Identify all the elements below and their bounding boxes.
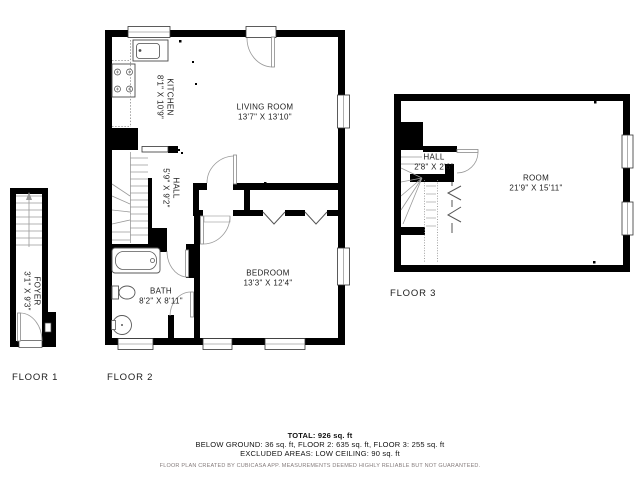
room-label-bath: BATH 8'2" X 8'11" [139,287,183,306]
room-name: FOYER [32,271,42,311]
room-dims: 3'1" X 9'3" [23,271,33,311]
room-name: BEDROOM [243,269,292,279]
hall-beam [142,147,168,153]
bathtub-icon [112,248,160,273]
door-arc-icon [18,313,43,341]
bedroom-door-threshold [204,216,230,222]
room-label-kitchen: KITCHEN 8'1" X 10'9" [156,75,175,119]
room-name: LIVING ROOM [237,103,294,113]
closet-door-marker [263,212,285,224]
kitchen-sink-icon [133,40,168,61]
door-arc-icon [457,150,478,174]
room-label-hall-floor2: HALL 5'9" X 9'2" [162,168,181,208]
floor1-label: FLOOR 1 [12,372,58,383]
closet-door-marker [305,212,327,224]
floorplan-page: FOYER 3'1" X 9'3" KITCHEN 8'1" X 10'9" L… [0,0,640,480]
room-name: KITCHEN [165,75,175,119]
room-label-room-floor3: ROOM 21'9" X 15'11" [509,174,562,193]
floorplan-drawing [0,0,640,480]
door-arc-icon [207,155,237,184]
floor-areas-text: BELOW GROUND: 36 sq. ft, FLOOR 2: 635 sq… [0,440,640,449]
measure-ticks [593,101,597,264]
room-label-hall-floor3: HALL 2'8" X 2'6" [414,153,454,172]
disclaimer-text: FLOOR PLAN CREATED BY CUBICASA APP. MEAS… [0,463,640,469]
staircase-icon [16,192,42,247]
room-dims: 8'1" X 10'9" [156,75,166,119]
entry-door-threshold [19,341,42,348]
room-dims: 13'3" X 12'4" [243,278,292,288]
floor2-label: FLOOR 2 [107,372,153,383]
area-summary: TOTAL: 926 sq. ft BELOW GROUND: 36 sq. f… [0,431,640,469]
toilet-icon [112,286,135,299]
room-dims: 5'9" X 9'2" [162,168,172,208]
floor2-interior-walls [112,146,345,345]
total-area-text: TOTAL: 926 sq. ft [0,431,640,440]
pedestal-sink-icon [112,316,132,335]
floor1-plan [10,188,56,348]
room-name: HALL [171,168,181,208]
front-door-arc-icon [247,37,275,67]
bath-door-arc-icon [167,250,189,277]
room-label-foyer: FOYER 3'1" X 9'3" [23,271,42,311]
low-ceiling-strip [425,180,438,262]
room-dims: 21'9" X 15'11" [509,183,562,193]
window-marker [45,323,51,332]
room-name: HALL [414,153,454,163]
floor3-label: FLOOR 3 [390,288,436,299]
wall-break-symbols [448,182,461,233]
staircase-icon [112,152,148,243]
room-label-bedroom: BEDROOM 13'3" X 12'4" [243,269,292,288]
room-name: BATH [139,287,183,297]
room-name: ROOM [509,174,562,184]
room-dims: 8'2" X 8'11" [139,296,183,306]
room-dims: 13'7" X 13'10" [237,112,294,122]
chimney-block [105,128,138,150]
room-label-living-room: LIVING ROOM 13'7" X 13'10" [237,103,294,122]
chimney-block [394,122,423,150]
front-door-threshold [246,27,276,38]
room-dims: 2'8" X 2'6" [414,162,454,172]
stove-icon [112,64,135,97]
excluded-areas-text: EXCLUDED AREAS: LOW CEILING: 90 sq. ft [0,449,640,458]
